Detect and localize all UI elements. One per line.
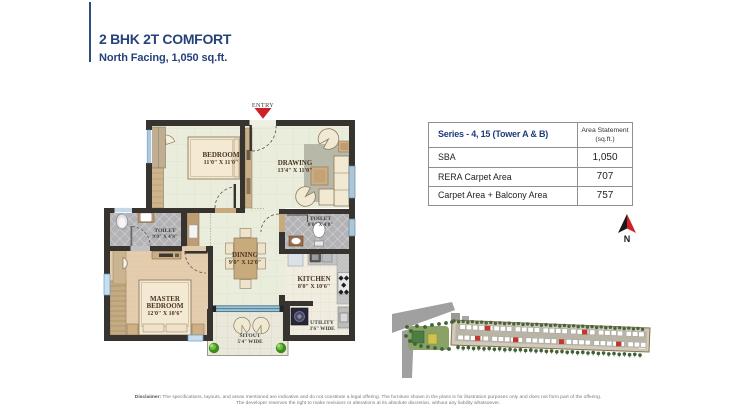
- svg-text:13'4" X 11'0": 13'4" X 11'0": [278, 168, 313, 174]
- svg-text:DRAWING: DRAWING: [278, 159, 313, 167]
- svg-text:BEDROOM: BEDROOM: [147, 302, 184, 310]
- svg-text:N: N: [624, 234, 631, 244]
- svg-text:ENTRY: ENTRY: [252, 102, 274, 109]
- svg-text:KITCHEN: KITCHEN: [297, 275, 330, 283]
- svg-text:11'0" X 11'0": 11'0" X 11'0": [204, 160, 239, 166]
- svg-text:12'0" X 10'6": 12'0" X 10'6": [147, 311, 182, 317]
- svg-text:9'0" X 4'8": 9'0" X 4'8": [152, 234, 177, 240]
- svg-text:DINING: DINING: [232, 251, 259, 259]
- svg-text:5'4" WIDE: 5'4" WIDE: [237, 339, 263, 345]
- svg-text:8'0" X 4'8": 8'0" X 4'8": [308, 222, 333, 228]
- svg-text:8'0" X 10'6": 8'0" X 10'6": [298, 284, 330, 290]
- svg-text:3'6" WIDE: 3'6" WIDE: [309, 326, 335, 332]
- svg-text:BEDROOM: BEDROOM: [203, 151, 240, 159]
- svg-text:9'0" X 12'0": 9'0" X 12'0": [229, 260, 261, 266]
